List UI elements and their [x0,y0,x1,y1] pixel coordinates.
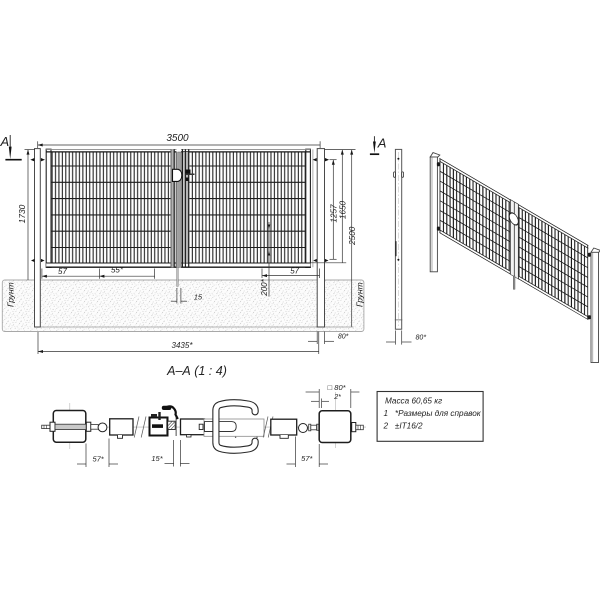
svg-text:80*: 80* [338,334,349,341]
svg-text:A: A [0,134,9,149]
svg-text:3435*: 3435* [172,341,194,350]
svg-text:1730: 1730 [17,204,27,223]
svg-text:15*: 15* [151,454,163,463]
svg-text:3500: 3500 [166,133,189,144]
svg-text:2*: 2* [333,394,341,401]
svg-text:57: 57 [290,267,299,276]
svg-text:1 *Размеры для справок: 1 *Размеры для справок [384,409,482,418]
svg-text:Грунт: Грунт [355,282,365,307]
svg-text:А–А (1 : 4): А–А (1 : 4) [166,364,227,378]
svg-text:2 ±IT16/2: 2 ±IT16/2 [383,421,424,430]
svg-text:1257: 1257 [330,204,339,223]
svg-text:57*: 57* [301,454,313,463]
svg-text:200*: 200* [260,278,269,296]
svg-text:Грунт: Грунт [6,282,16,307]
svg-text:□ 80*: □ 80* [328,383,347,392]
svg-text:55*: 55* [111,266,124,275]
svg-text:80*: 80* [416,335,427,342]
svg-text:A: A [377,136,387,151]
svg-text:2500: 2500 [348,226,357,246]
svg-text:1650: 1650 [339,200,348,219]
svg-text:15: 15 [194,293,203,302]
svg-text:57: 57 [58,267,67,276]
svg-text:57*: 57* [92,455,104,464]
svg-text:Масса 60,65 кг: Масса 60,65 кг [385,396,442,405]
